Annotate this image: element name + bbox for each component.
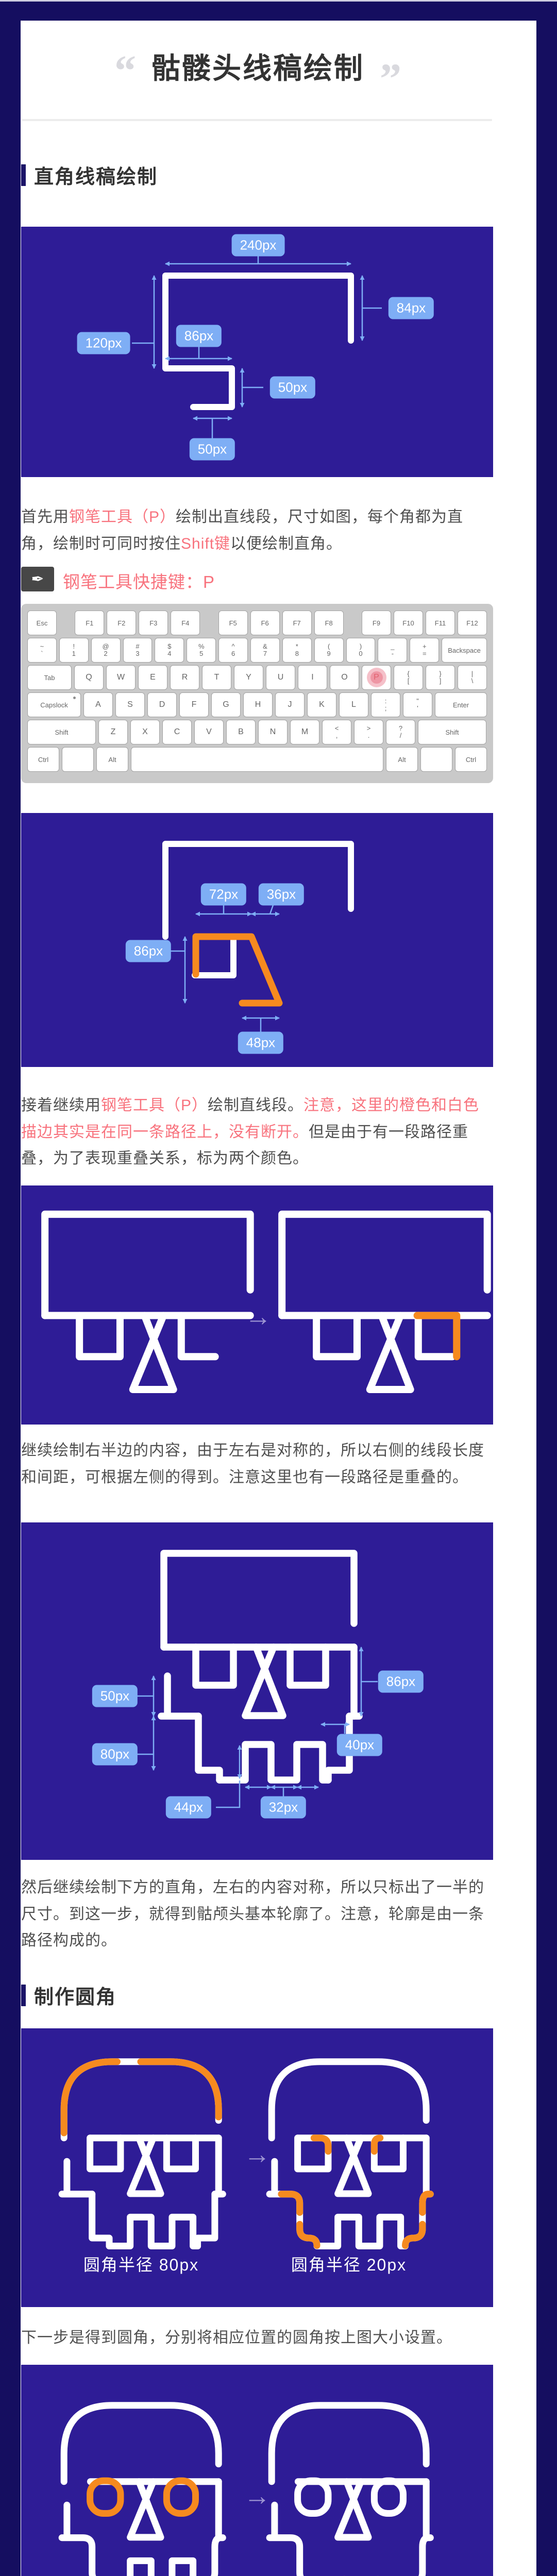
dimension-label: 84px — [389, 297, 434, 319]
pen-shortcut-tip: 钢笔工具快捷键：P — [63, 568, 215, 593]
key-v: V — [194, 720, 224, 744]
key-f8: F8 — [314, 611, 344, 635]
key-?: ?/ — [386, 720, 415, 744]
key-#: #3 — [123, 638, 153, 663]
key-+: += — [410, 638, 439, 663]
key-group: F1F2F3F4 — [75, 611, 200, 635]
figure-rounding-step2: → 圆角半径 25px 圆角半径 16px — [21, 2365, 493, 2576]
key-f10: F10 — [394, 611, 423, 635]
key-$: $4 — [155, 638, 184, 663]
dimension-label: 86px — [378, 1671, 424, 1693]
key-&: &7 — [250, 638, 280, 663]
section-title: 直角线稿绘制 — [34, 161, 158, 189]
key-r: R — [170, 665, 199, 690]
figure2-art — [21, 813, 493, 1067]
body-text: 以便绘制直角。 — [230, 535, 342, 552]
body-text: 下一步是得到圆角，分别将相应位置的圆角按上图大小设置。 — [21, 2329, 452, 2346]
dimension-label: 50px — [270, 377, 315, 399]
open-quote-icon: “ — [114, 58, 136, 84]
key-<: <, — [322, 720, 351, 744]
key-esc: Esc — [27, 611, 57, 635]
key-e: E — [138, 665, 167, 690]
key-enter: Enter — [435, 692, 487, 717]
key-f5: F5 — [218, 611, 248, 635]
key-backspace: Backspace — [442, 638, 487, 663]
section-bar-icon — [21, 164, 26, 186]
key-f2: F2 — [107, 611, 136, 635]
key-q: Q — [74, 665, 104, 690]
figure-caption: 圆角半径 80px — [83, 2252, 199, 2276]
keyboard-row-5: ShiftZXCVBNM<,>.?/Shift — [27, 720, 487, 744]
keyboard-row-4: CapslockASDFGHJKL:;"'Enter — [27, 692, 487, 717]
dimension-label: 86px — [176, 325, 222, 347]
title-divider — [22, 119, 492, 121]
key-m: M — [290, 720, 319, 744]
key-s: S — [115, 692, 145, 717]
key-w: W — [106, 665, 136, 690]
figure6-art — [21, 2365, 493, 2576]
dimension-label: 32px — [261, 1797, 306, 1819]
key-f3: F3 — [139, 611, 168, 635]
key-group: Esc — [27, 611, 57, 635]
keyboard-row-3: TabQWERTYUIOP{[}]|\ — [27, 665, 487, 690]
key-(: (9 — [314, 638, 344, 663]
key-b: B — [226, 720, 256, 744]
key-u: U — [266, 665, 295, 690]
skull-outline — [161, 1553, 359, 1780]
section-bar-icon — [21, 1985, 26, 2006]
pen-nib-icon: ✒ — [21, 567, 54, 591]
key-@: @2 — [91, 638, 121, 663]
key-a: A — [83, 692, 113, 717]
key-f: F — [179, 692, 209, 717]
key-f12: F12 — [458, 611, 487, 635]
key-z: Z — [98, 720, 128, 744]
key-p: P — [362, 665, 391, 690]
dimension-lines — [132, 255, 382, 439]
arrow-icon: → — [245, 1301, 272, 1332]
page-top-strip — [0, 0, 557, 2]
paragraph-4: 然后继续绘制下方的直角，左右的内容对称，所以只标出了一半的尺寸。到这一步，就得到… — [21, 1874, 493, 1954]
key-|: |\ — [458, 665, 487, 690]
key-i: I — [298, 665, 327, 690]
orange-path — [196, 937, 279, 1003]
body-text: 然后继续绘制下方的直角，左右的内容对称，所以只标出了一半的尺寸。到这一步，就得到… — [21, 1879, 484, 1949]
dimension-label: 36px — [259, 884, 304, 906]
key-%: %5 — [187, 638, 216, 663]
key-": "' — [403, 692, 432, 717]
dimension-label: 120px — [77, 332, 130, 354]
key-group: F9F10F11F12 — [362, 611, 487, 635]
key-f7: F7 — [282, 611, 312, 635]
body-text: 接着继续用 — [21, 1097, 101, 1114]
figure-mirror-step: → — [21, 1185, 493, 1425]
key-*: *8 — [282, 638, 312, 663]
paragraph-5: 下一步是得到圆角，分别将相应位置的圆角按上图大小设置。 — [21, 2325, 493, 2351]
highlighted-text: 钢笔工具（P） — [101, 1097, 208, 1114]
key-tab: Tab — [27, 665, 72, 690]
section-header-right-angle: 直角线稿绘制 — [21, 161, 158, 189]
body-text: 继续绘制右半边的内容，由于左右是对称的，所以右侧的线段长度和间距，可根据左侧的得… — [21, 1442, 484, 1486]
dimension-label: 44px — [166, 1797, 211, 1819]
key-shift: Shift — [418, 720, 486, 744]
figure-full-outline-dimensions: 50px 80px 86px 40px 44px 32px — [21, 1522, 493, 1860]
keyboard-row-2: ~`!1@2#3$4%5^6&7*8(9)0_-+=Backspace — [27, 638, 487, 663]
key-alt: Alt — [386, 747, 418, 772]
skull-radius-80 — [62, 2062, 223, 2246]
key-shift: Shift — [27, 720, 96, 744]
key-t: T — [202, 665, 231, 690]
key-f9: F9 — [362, 611, 391, 635]
key-blank — [131, 747, 383, 772]
dimension-label: 80px — [92, 1743, 138, 1766]
key-blank — [420, 747, 452, 772]
key-alt: Alt — [96, 747, 128, 772]
key-g: G — [211, 692, 241, 717]
article-header: “ 骷髅头线稿绘制 ” — [0, 45, 516, 87]
page-title: 骷髅头线稿绘制 — [151, 45, 364, 87]
figure-orange-overlap: 72px 36px 86px 48px — [21, 813, 493, 1067]
key-_: _- — [378, 638, 407, 663]
key-c: C — [162, 720, 192, 744]
dimension-label: 86px — [126, 940, 171, 962]
keyboard-function-row: EscF1F2F3F4F5F6F7F8F9F10F11F12 — [27, 611, 487, 635]
key-h: H — [243, 692, 273, 717]
dimension-label: 48px — [238, 1032, 283, 1054]
key-o: O — [330, 665, 359, 690]
skull-radius-25 — [62, 2405, 223, 2576]
key-blank — [62, 747, 94, 772]
keyboard-illustration: EscF1F2F3F4F5F6F7F8F9F10F11F12~`!1@2#3$4… — [21, 604, 493, 783]
key-d: D — [147, 692, 177, 717]
key-}: }] — [426, 665, 455, 690]
paragraph-2: 接着继续用钢笔工具（P）绘制直线段。注意，这里的橙色和白色描边其实是在同一条路径… — [21, 1092, 493, 1172]
arrow-icon: → — [244, 2481, 271, 2512]
dimension-label: 50px — [92, 1685, 138, 1707]
figure-caption: 圆角半径 20px — [291, 2252, 407, 2276]
key-:: :; — [371, 692, 400, 717]
keyboard-row-6: CtrlAltAltCtrl — [27, 747, 487, 772]
figure-line-dimensions: 240px 84px 120px 86px 50px 50px — [21, 227, 493, 477]
key-f1: F1 — [75, 611, 104, 635]
dimension-label: 50px — [190, 438, 235, 461]
key-j: J — [275, 692, 305, 717]
key-!: !1 — [59, 638, 89, 663]
key->: >. — [354, 720, 383, 744]
key-l: L — [339, 692, 368, 717]
arrow-icon: → — [244, 2139, 271, 2170]
key-): )0 — [346, 638, 376, 663]
skull-radius-20 — [269, 2062, 430, 2246]
key-f4: F4 — [171, 611, 200, 635]
section-header-rounded: 制作圆角 — [21, 1981, 116, 2009]
key-capslock: Capslock — [27, 692, 81, 717]
dimension-lines — [136, 1647, 378, 1807]
dimension-label: 240px — [232, 234, 285, 257]
skull-radius-16 — [269, 2405, 430, 2576]
figure-rounding-step1: → 圆角半径 80px 圆角半径 20px — [21, 2028, 493, 2307]
key-f11: F11 — [426, 611, 455, 635]
paragraph-1: 首先用钢笔工具（P）绘制出直线段，尺寸如图，每个角都为直角，绘制时可同时按住Sh… — [21, 504, 493, 557]
key-ctrl: Ctrl — [455, 747, 487, 772]
close-quote-icon: ” — [380, 66, 401, 92]
dimension-label: 40px — [337, 1734, 382, 1756]
body-text: 首先用 — [21, 509, 69, 526]
section-title: 制作圆角 — [34, 1981, 116, 2009]
key-^: ^6 — [218, 638, 248, 663]
key-ctrl: Ctrl — [27, 747, 59, 772]
dimension-label: 72px — [201, 884, 246, 906]
key-{: {[ — [394, 665, 423, 690]
highlighted-text: Shift键 — [181, 535, 230, 552]
key-f6: F6 — [250, 611, 280, 635]
body-text: 绘制直线段。 — [208, 1097, 303, 1114]
paragraph-3: 继续绘制右半边的内容，由于左右是对称的，所以右侧的线段长度和间距，可根据左侧的得… — [21, 1437, 493, 1490]
highlighted-text: 钢笔工具（P） — [69, 509, 176, 526]
capslock-indicator-dot — [73, 697, 76, 699]
key-k: K — [307, 692, 336, 717]
skull-left — [45, 1214, 250, 1389]
key-y: Y — [234, 665, 263, 690]
key-~: ~` — [27, 638, 57, 663]
key-group: F5F6F7F8 — [218, 611, 344, 635]
key-n: N — [258, 720, 288, 744]
skull-right — [282, 1214, 487, 1389]
key-x: X — [130, 720, 160, 744]
